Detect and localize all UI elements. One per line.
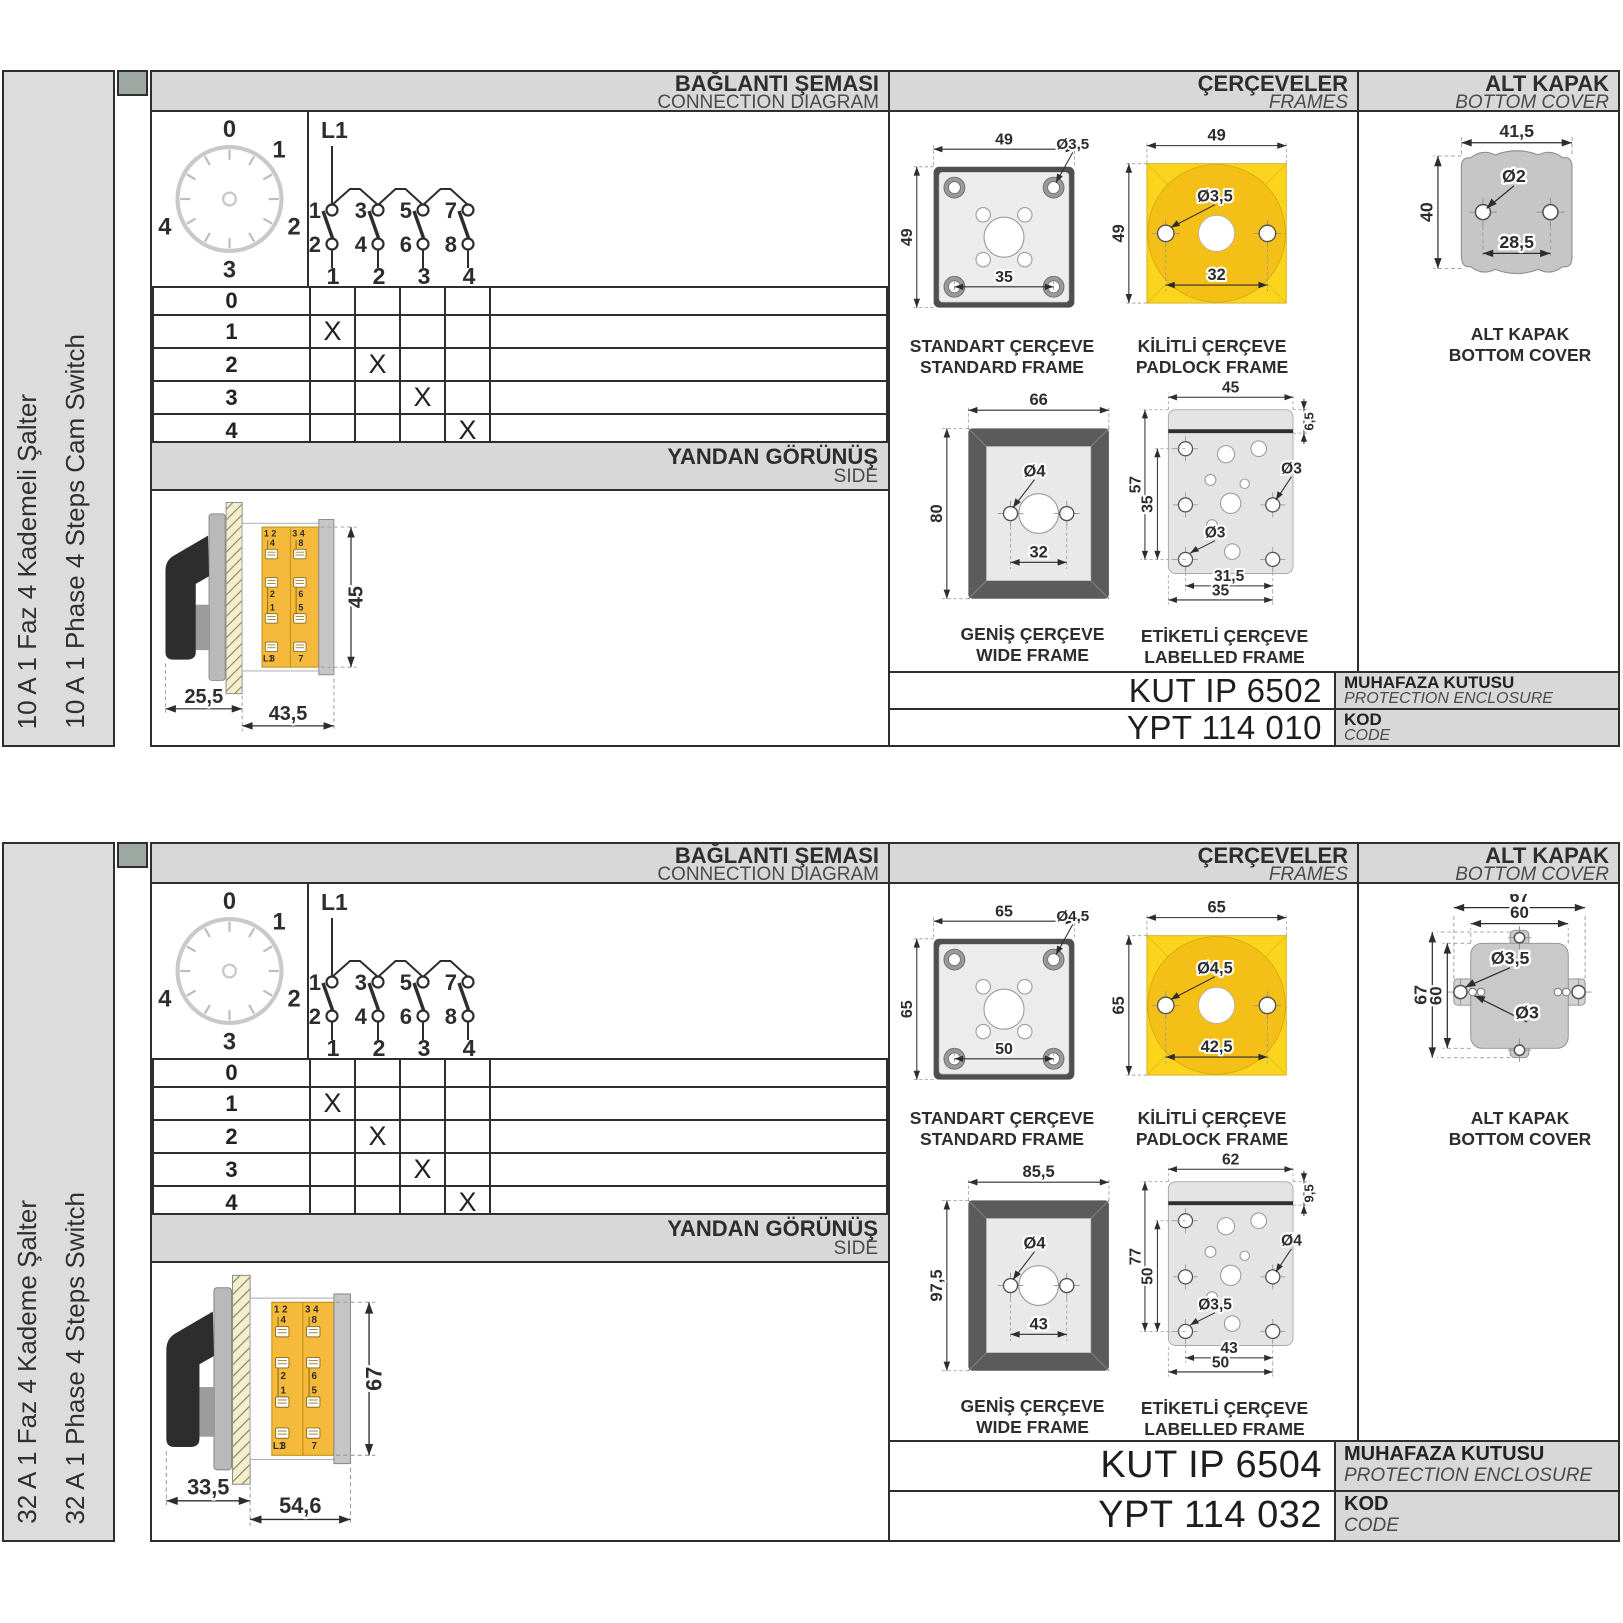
step-table: 01X2X3X4X	[152, 286, 888, 448]
padlock-frame-drawing: Ø4,5656542,5	[1110, 890, 1315, 1106]
code-row: YPT 114 010 KOD CODE	[888, 708, 1618, 745]
step-row-label: 1	[153, 315, 310, 348]
svg-text:3: 3	[418, 1035, 431, 1058]
svg-text:4: 4	[355, 232, 368, 257]
contact-mark-cell	[400, 1059, 445, 1087]
enclosure-label-en: PROTECTION ENCLOSURE	[1344, 1466, 1610, 1486]
svg-text:1: 1	[273, 910, 286, 936]
svg-text:42,5: 42,5	[1201, 1038, 1233, 1056]
cover-header-tr: ALT KAPAK	[1368, 845, 1609, 866]
svg-text:40: 40	[1416, 202, 1436, 222]
svg-text:L1: L1	[321, 117, 348, 143]
svg-text:1 2: 1 2	[264, 529, 277, 539]
svg-text:Ø4,5: Ø4,5	[1056, 908, 1089, 925]
contact-mark-cell	[310, 1059, 355, 1087]
step-row: 0	[153, 287, 887, 315]
svg-text:Ø3,5: Ø3,5	[1197, 187, 1233, 205]
step-row-label: 3	[153, 381, 310, 414]
labelled-frame-caption: ETİKETLİ ÇERÇEVE LABELLED FRAME	[1107, 626, 1342, 668]
svg-text:45: 45	[1222, 380, 1240, 397]
svg-text:Ø4,5: Ø4,5	[1197, 959, 1233, 977]
svg-text:6: 6	[400, 232, 412, 257]
svg-text:4: 4	[158, 987, 172, 1013]
svg-text:Ø3: Ø3	[1515, 1002, 1539, 1022]
svg-text:32: 32	[1207, 266, 1225, 284]
code-label-tr: KOD	[1344, 1493, 1610, 1516]
enclosure-label-en: PROTECTION ENCLOSURE	[1344, 691, 1610, 707]
svg-text:1 2: 1 2	[274, 1305, 288, 1316]
svg-text:8: 8	[445, 1004, 457, 1029]
enclosure-code-value: KUT IP 6502	[888, 673, 1334, 708]
contact-mark-cell	[310, 1120, 355, 1153]
code-label-en: CODE	[1344, 728, 1610, 744]
step-row-label: 0	[153, 1059, 310, 1087]
labelled-frame-caption-en: LABELLED FRAME	[1107, 1419, 1342, 1440]
step-row: 0	[153, 1059, 887, 1087]
enclosure-code-value: KUT IP 6504	[888, 1442, 1334, 1490]
labelled-frame-caption-tr: ETİKETLİ ÇERÇEVE	[1107, 626, 1342, 647]
contact-mark-cell: X	[400, 1153, 445, 1186]
step-row-filler	[490, 1153, 887, 1186]
contact-mark-cell	[445, 287, 490, 315]
bottom-cover-caption-en: BOTTOM COVER	[1400, 345, 1623, 366]
product-name-tr: 10 A 1 Faz 4 Kademeli Şalter	[12, 394, 43, 729]
contact-mark-cell	[355, 287, 400, 315]
catalog-page: 10 A 1 Faz 4 Kademeli Şalter 10 A 1 Phas…	[0, 0, 1623, 1623]
contact-mark-cell: X	[400, 381, 445, 414]
step-contact-table: 01X2X3X4X	[152, 1058, 888, 1196]
connection-header-en: CONNECTION DIAGRAM	[161, 94, 879, 111]
contact-mark-cell	[355, 1059, 400, 1087]
svg-text:6,5: 6,5	[1301, 412, 1316, 430]
connection-header-tr: BAĞLANTI ŞEMASI	[161, 845, 879, 866]
svg-text:4: 4	[463, 263, 476, 286]
padlock-frame-caption-tr: KİLİTLİ ÇERÇEVE	[1102, 336, 1322, 357]
svg-text:1: 1	[280, 1385, 286, 1396]
svg-text:Ø3,5: Ø3,5	[1198, 1297, 1232, 1314]
svg-text:3: 3	[418, 263, 431, 286]
svg-text:97,5: 97,5	[927, 1269, 946, 1301]
svg-text:4: 4	[158, 215, 172, 241]
svg-text:3 4: 3 4	[292, 529, 305, 539]
enclosure-label-tr: MUHAFAZA KUTUSU	[1344, 1443, 1610, 1466]
svg-text:49: 49	[1207, 127, 1225, 145]
step-row: 3X	[153, 1153, 887, 1186]
standard-frame-caption-en: STANDARD FRAME	[892, 357, 1112, 378]
frames-header: ÇERÇEVELER FRAMES	[890, 72, 1357, 112]
side-view-drawing: 42131 286573 4L16733,554,6	[156, 1265, 756, 1536]
svg-text:50: 50	[995, 1041, 1013, 1058]
spine-strip	[115, 842, 150, 1542]
connection-header-tr: BAĞLANTI ŞEMASI	[161, 73, 879, 94]
svg-text:8: 8	[312, 1315, 318, 1326]
svg-text:62: 62	[1222, 1152, 1240, 1169]
svg-text:0: 0	[223, 889, 236, 915]
standard-frame-drawing: 49Ø3,54935	[900, 118, 1100, 334]
code-label: KOD CODE	[1334, 1492, 1618, 1540]
svg-text:6: 6	[298, 589, 303, 599]
svg-text:65: 65	[995, 903, 1013, 920]
svg-text:43: 43	[1029, 1314, 1047, 1333]
svg-text:Ø3: Ø3	[1205, 525, 1226, 542]
svg-text:50: 50	[1140, 1267, 1157, 1285]
svg-text:1: 1	[327, 263, 340, 286]
svg-text:32: 32	[1029, 542, 1047, 561]
svg-text:77: 77	[1127, 1248, 1144, 1265]
svg-text:3: 3	[355, 198, 367, 223]
product-section: 32 A 1 Faz 4 Kademe Şalter 32 A 1 Phase …	[0, 842, 1623, 1542]
datasheet-panel: BAĞLANTI ŞEMASI CONNECTION DIAGRAM ÇERÇE…	[150, 842, 1620, 1542]
bottom-cover-header: ALT KAPAK BOTTOM COVER	[1359, 72, 1618, 112]
svg-text:2: 2	[373, 1035, 386, 1058]
bottom-cover-caption-tr: ALT KAPAK	[1400, 1108, 1623, 1129]
contact-mark-cell	[310, 348, 355, 381]
svg-text:50: 50	[1212, 1354, 1230, 1371]
step-row-filler	[490, 315, 887, 348]
bottom-cover-caption-tr: ALT KAPAK	[1400, 324, 1623, 345]
svg-text:7: 7	[445, 198, 457, 223]
column-divider-2	[1357, 72, 1359, 671]
side-view-header-en: SIDE	[162, 1240, 878, 1258]
position-dial-drawing: 01234	[152, 884, 309, 1058]
svg-text:2: 2	[373, 263, 386, 286]
svg-text:L1: L1	[321, 889, 348, 915]
svg-text:1: 1	[309, 198, 321, 223]
svg-text:Ø4: Ø4	[1281, 1233, 1302, 1250]
step-row-filler	[490, 348, 887, 381]
step-row-filler	[490, 1087, 887, 1120]
contact-mark-cell: X	[310, 315, 355, 348]
step-row-filler	[490, 287, 887, 315]
step-row: 1X	[153, 1087, 887, 1120]
svg-text:35: 35	[1140, 495, 1157, 513]
standard-frame-caption-tr: STANDART ÇERÇEVE	[892, 336, 1112, 357]
cover-header-en: BOTTOM COVER	[1368, 866, 1609, 883]
svg-text:65: 65	[1207, 899, 1225, 917]
svg-text:Ø4: Ø4	[1023, 1233, 1046, 1252]
labelled-frame-caption-tr: ETİKETLİ ÇERÇEVE	[1107, 1398, 1342, 1419]
contact-mark-cell: X	[355, 348, 400, 381]
svg-text:35: 35	[1212, 582, 1230, 599]
svg-text:60: 60	[1510, 903, 1529, 922]
contact-mark-cell	[400, 1120, 445, 1153]
step-row-filler	[490, 1059, 887, 1087]
contact-mark-cell: X	[355, 1120, 400, 1153]
svg-text:8: 8	[445, 232, 457, 257]
svg-text:Ø3: Ø3	[1281, 461, 1302, 478]
column-divider-2	[1357, 844, 1359, 1440]
bottom-cover-caption: ALT KAPAK BOTTOM COVER	[1400, 324, 1623, 366]
standard-frame-caption: STANDART ÇERÇEVE STANDARD FRAME	[892, 336, 1112, 378]
svg-text:Ø3,5: Ø3,5	[1056, 136, 1089, 153]
svg-text:4: 4	[280, 1315, 286, 1326]
step-row-label: 1	[153, 1087, 310, 1120]
contact-mark-cell	[310, 381, 355, 414]
svg-text:85,5: 85,5	[1023, 1162, 1055, 1181]
svg-text:Ø2: Ø2	[1502, 166, 1526, 186]
svg-text:2: 2	[288, 215, 301, 241]
connection-header-en: CONNECTION DIAGRAM	[161, 866, 879, 883]
svg-text:2: 2	[288, 987, 301, 1013]
frames-header-tr: ÇERÇEVELER	[899, 845, 1348, 866]
standard-frame-caption: STANDART ÇERÇEVE STANDARD FRAME	[892, 1108, 1112, 1150]
svg-text:4: 4	[463, 1035, 476, 1058]
product-code-value: YPT 114 032	[888, 1492, 1334, 1540]
svg-text:L1: L1	[263, 653, 274, 663]
side-view-drawing: 42131 286573 4L14525,543,5	[156, 493, 756, 741]
side-view-header-tr: YANDAN GÖRÜNÜŞ	[162, 1217, 878, 1240]
svg-text:2: 2	[280, 1371, 286, 1382]
column-divider-1	[888, 72, 890, 745]
svg-text:5: 5	[400, 970, 412, 995]
step-row: 1X	[153, 315, 887, 348]
step-row-label: 2	[153, 1120, 310, 1153]
svg-text:7: 7	[298, 653, 303, 663]
svg-text:41,5: 41,5	[1499, 122, 1534, 141]
contact-mark-cell	[310, 1153, 355, 1186]
step-row: 3X	[153, 381, 887, 414]
step-row-label: 3	[153, 1153, 310, 1186]
svg-text:3 4: 3 4	[305, 1305, 319, 1316]
svg-text:67: 67	[361, 1367, 386, 1391]
step-row-label: 0	[153, 287, 310, 315]
contact-mark-cell	[445, 1153, 490, 1186]
contact-mark-cell	[445, 1059, 490, 1087]
contact-mark-cell	[355, 315, 400, 348]
standard-frame-drawing: 65Ø4,56550	[900, 890, 1100, 1106]
labelled-frame-drawing: 629,57750Ø4Ø3,54350	[1120, 1140, 1332, 1395]
cover-header-tr: ALT KAPAK	[1368, 73, 1609, 94]
svg-text:2: 2	[309, 1004, 321, 1029]
svg-text:49: 49	[995, 131, 1013, 148]
wide-frame-drawing: Ø4668032	[927, 377, 1142, 622]
bottom-cover-caption-en: BOTTOM COVER	[1400, 1129, 1623, 1150]
svg-text:Ø3,5: Ø3,5	[1491, 948, 1530, 968]
product-code-value: YPT 114 010	[888, 710, 1334, 745]
bottom-cover-drawing: 67606760Ø3,5Ø3	[1407, 894, 1623, 1106]
contact-mark-cell	[445, 315, 490, 348]
svg-text:25,5: 25,5	[184, 686, 223, 708]
code-label: KOD CODE	[1334, 710, 1618, 745]
svg-text:8: 8	[298, 538, 303, 548]
connection-diagram-header: BAĞLANTI ŞEMASI CONNECTION DIAGRAM	[152, 844, 888, 884]
spine-strip	[115, 70, 150, 747]
contact-mark-cell	[400, 348, 445, 381]
padlock-frame-caption-tr: KİLİTLİ ÇERÇEVE	[1102, 1108, 1322, 1129]
svg-text:43,5: 43,5	[269, 703, 308, 725]
svg-text:4: 4	[355, 1004, 368, 1029]
position-dial-drawing: 01234	[152, 112, 309, 286]
contact-mark-cell	[400, 315, 445, 348]
connection-schematic-drawing: L1121342563784	[309, 112, 888, 286]
frames-header-tr: ÇERÇEVELER	[899, 73, 1348, 94]
svg-text:5: 5	[298, 602, 303, 612]
enclosure-label: MUHAFAZA KUTUSU PROTECTION ENCLOSURE	[1334, 673, 1618, 708]
svg-text:33,5: 33,5	[187, 1475, 229, 1500]
enclosure-row: KUT IP 6504 MUHAFAZA KUTUSU PROTECTION E…	[888, 1440, 1618, 1490]
column-divider-1	[888, 844, 890, 1540]
svg-text:6: 6	[312, 1371, 318, 1382]
wide-frame-drawing: Ø485,597,543	[927, 1149, 1142, 1394]
contact-mark-cell	[445, 381, 490, 414]
frames-header-en: FRAMES	[899, 866, 1348, 883]
step-row: 2X	[153, 1120, 887, 1153]
cover-header-en: BOTTOM COVER	[1368, 94, 1609, 111]
svg-text:28,5: 28,5	[1499, 232, 1534, 252]
spine-square	[117, 70, 148, 96]
side-view-header-en: SIDE	[162, 468, 878, 486]
contact-mark-cell	[400, 1087, 445, 1120]
svg-text:1: 1	[273, 138, 286, 164]
svg-text:65: 65	[1110, 996, 1128, 1014]
svg-text:49: 49	[1110, 224, 1128, 242]
contact-mark-cell	[355, 1153, 400, 1186]
svg-text:1: 1	[270, 602, 275, 612]
svg-text:45: 45	[345, 586, 367, 608]
step-table: 01X2X3X4X	[152, 1058, 888, 1220]
svg-text:49: 49	[900, 228, 916, 246]
standard-frame-caption-en: STANDARD FRAME	[892, 1129, 1112, 1150]
step-contact-table: 01X2X3X4X	[152, 286, 888, 424]
product-label-column: 10 A 1 Faz 4 Kademeli Şalter 10 A 1 Phas…	[2, 70, 115, 747]
labelled-frame-caption: ETİKETLİ ÇERÇEVE LABELLED FRAME	[1107, 1398, 1342, 1440]
connection-schematic-drawing: L1121342563784	[309, 884, 888, 1058]
svg-text:1: 1	[327, 1035, 340, 1058]
product-name-en: 10 A 1 Phase 4 Steps Cam Switch	[60, 334, 91, 729]
frames-header: ÇERÇEVELER FRAMES	[890, 844, 1357, 884]
code-label-tr: KOD	[1344, 711, 1610, 728]
contact-mark-cell	[310, 287, 355, 315]
step-row-filler	[490, 381, 887, 414]
svg-text:1: 1	[309, 970, 321, 995]
svg-text:7: 7	[312, 1441, 318, 1452]
spine-square	[117, 842, 148, 868]
labelled-frame-caption-en: LABELLED FRAME	[1107, 647, 1342, 668]
code-row: YPT 114 032 KOD CODE	[888, 1490, 1618, 1540]
svg-text:80: 80	[927, 504, 946, 522]
svg-text:66: 66	[1029, 390, 1047, 409]
svg-text:2: 2	[270, 589, 275, 599]
datasheet-panel: BAĞLANTI ŞEMASI CONNECTION DIAGRAM ÇERÇE…	[150, 70, 1620, 747]
svg-text:7: 7	[445, 970, 457, 995]
svg-text:5: 5	[400, 198, 412, 223]
step-row-label: 2	[153, 348, 310, 381]
enclosure-row: KUT IP 6502 MUHAFAZA KUTUSU PROTECTION E…	[888, 671, 1618, 708]
step-row-filler	[490, 1120, 887, 1153]
svg-text:35: 35	[995, 269, 1013, 286]
connection-diagram-header: BAĞLANTI ŞEMASI CONNECTION DIAGRAM	[152, 72, 888, 112]
svg-text:3: 3	[355, 970, 367, 995]
svg-text:57: 57	[1127, 476, 1144, 493]
bottom-cover-drawing: 41,540Ø228,5	[1407, 122, 1623, 322]
padlock-frame-drawing: Ø3,5494932	[1110, 118, 1315, 334]
code-label-en: CODE	[1344, 1516, 1610, 1536]
svg-text:60: 60	[1427, 986, 1446, 1005]
svg-text:Ø4: Ø4	[1023, 461, 1046, 480]
svg-text:6: 6	[400, 1004, 412, 1029]
enclosure-label: MUHAFAZA KUTUSU PROTECTION ENCLOSURE	[1334, 1442, 1618, 1490]
contact-mark-cell	[355, 381, 400, 414]
svg-text:2: 2	[309, 232, 321, 257]
enclosure-label-tr: MUHAFAZA KUTUSU	[1344, 674, 1610, 691]
svg-text:3: 3	[223, 1029, 236, 1055]
side-view-header-tr: YANDAN GÖRÜNÜŞ	[162, 445, 878, 468]
svg-text:3: 3	[223, 257, 236, 283]
contact-mark-cell	[445, 1087, 490, 1120]
step-row: 2X	[153, 348, 887, 381]
labelled-frame-drawing: 456,55735Ø3Ø331,535	[1120, 368, 1332, 623]
product-name-en: 32 A 1 Phase 4 Steps Switch	[60, 1192, 91, 1524]
bottom-cover-header: ALT KAPAK BOTTOM COVER	[1359, 844, 1618, 884]
contact-mark-cell	[400, 287, 445, 315]
svg-text:5: 5	[312, 1385, 318, 1396]
side-view-header: YANDAN GÖRÜNÜŞ SIDE	[152, 441, 888, 491]
side-view-header: YANDAN GÖRÜNÜŞ SIDE	[152, 1213, 888, 1263]
contact-mark-cell: X	[310, 1087, 355, 1120]
svg-text:54,6: 54,6	[279, 1493, 321, 1518]
frames-header-en: FRAMES	[899, 94, 1348, 111]
svg-text:4: 4	[270, 538, 275, 548]
standard-frame-caption-tr: STANDART ÇERÇEVE	[892, 1108, 1112, 1129]
product-label-column: 32 A 1 Faz 4 Kademe Şalter 32 A 1 Phase …	[2, 842, 115, 1542]
svg-text:9,5: 9,5	[1301, 1184, 1316, 1202]
contact-mark-cell	[355, 1087, 400, 1120]
product-name-tr: 32 A 1 Faz 4 Kademe Şalter	[12, 1200, 43, 1524]
contact-mark-cell	[445, 1120, 490, 1153]
bottom-cover-caption: ALT KAPAK BOTTOM COVER	[1400, 1108, 1623, 1150]
contact-mark-cell	[445, 348, 490, 381]
product-section: 10 A 1 Faz 4 Kademeli Şalter 10 A 1 Phas…	[0, 70, 1623, 747]
svg-text:65: 65	[900, 1000, 916, 1018]
svg-text:0: 0	[223, 117, 236, 143]
svg-text:L1: L1	[273, 1441, 285, 1452]
